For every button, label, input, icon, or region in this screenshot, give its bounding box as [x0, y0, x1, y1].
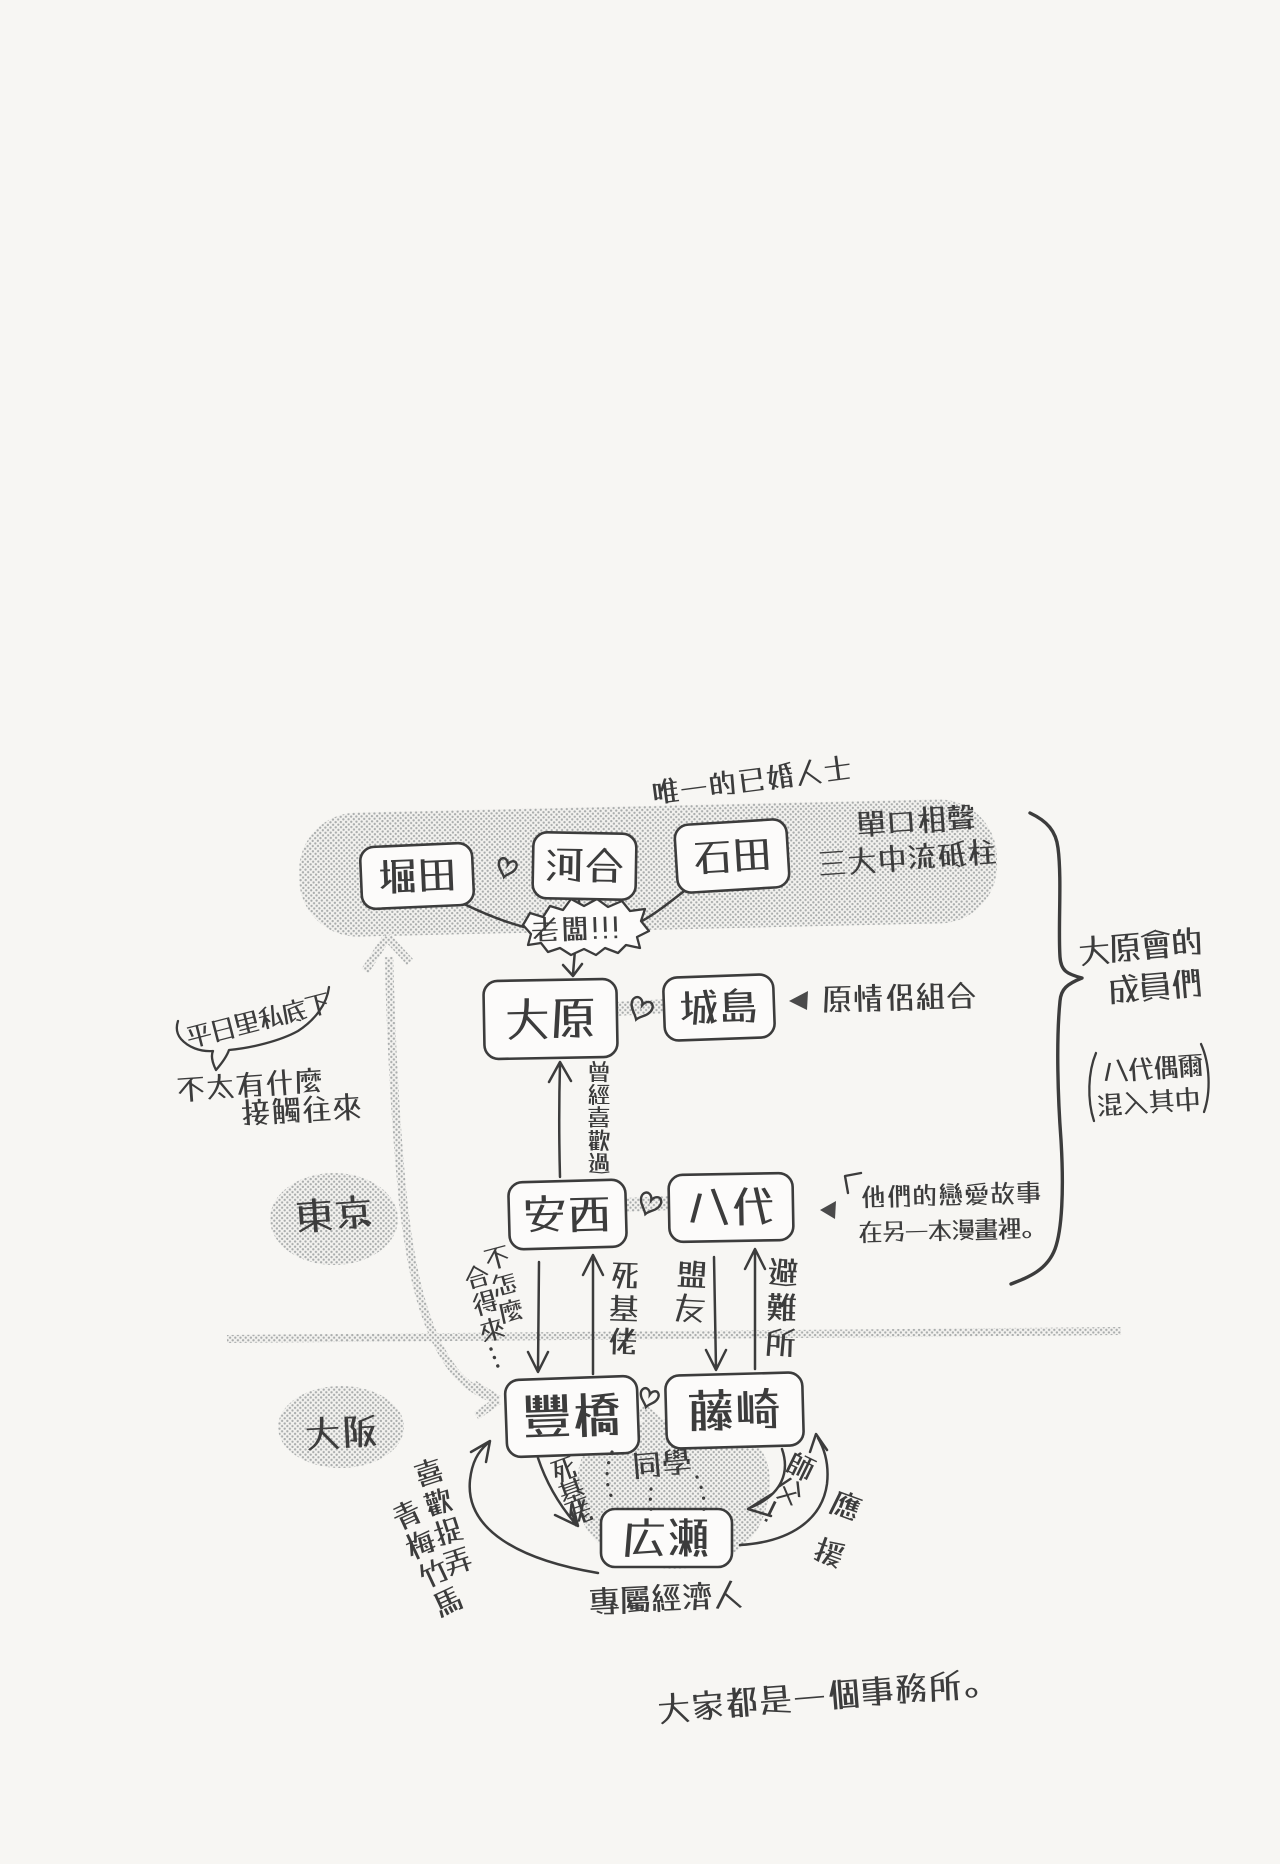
svg-text:豐橋: 豐橋	[521, 1384, 623, 1446]
svg-text:基: 基	[608, 1291, 640, 1328]
svg-text:在另一本漫畫裡。: 在另一本漫畫裡。	[857, 1212, 1043, 1247]
svg-text:大阪: 大阪	[303, 1409, 379, 1456]
svg-text:他們的戀愛故事: 他們的戀愛故事	[859, 1177, 1042, 1213]
svg-text:八代: 八代	[687, 1180, 776, 1234]
svg-text:友: 友	[673, 1290, 707, 1329]
svg-text:避: 避	[766, 1254, 799, 1292]
svg-text:成員們: 成員們	[1106, 963, 1202, 1010]
svg-text:同學: 同學	[630, 1444, 693, 1484]
svg-text:混入其中: 混入其中	[1095, 1083, 1201, 1122]
svg-text:接觸往來: 接觸往來	[239, 1089, 363, 1132]
svg-text:大家都是一個事務所。: 大家都是一個事務所。	[655, 1662, 997, 1729]
svg-text:老闆!!!: 老闆!!!	[530, 910, 622, 947]
svg-text:石田: 石田	[691, 829, 774, 881]
svg-text:過: 過	[587, 1149, 611, 1178]
svg-text:城島: 城島	[678, 982, 760, 1032]
svg-text:唯一的已婚人士: 唯一的已婚人士	[648, 750, 854, 810]
svg-text:死: 死	[609, 1258, 641, 1295]
svg-text:盟: 盟	[675, 1256, 709, 1295]
svg-text:河合: 河合	[544, 841, 625, 889]
svg-text:八代偶爾: 八代偶爾	[1101, 1049, 1204, 1088]
svg-text:應: 應	[825, 1484, 866, 1528]
svg-text:佬: 佬	[607, 1324, 639, 1361]
svg-text:難: 難	[765, 1289, 798, 1327]
svg-text:大原: 大原	[504, 991, 597, 1047]
svg-text:広瀬: 広瀬	[623, 1511, 711, 1563]
svg-text:原情侶組合: 原情侶組合	[821, 978, 977, 1018]
svg-text:援: 援	[808, 1531, 849, 1575]
svg-text:安西: 安西	[523, 1186, 612, 1240]
svg-text:藤崎: 藤崎	[686, 1380, 783, 1439]
svg-text:專屬經濟人: 專屬經濟人	[587, 1576, 744, 1621]
svg-text:堀田: 堀田	[376, 850, 458, 900]
svg-text:所: 所	[764, 1324, 797, 1362]
svg-text:東京: 東京	[293, 1188, 374, 1239]
